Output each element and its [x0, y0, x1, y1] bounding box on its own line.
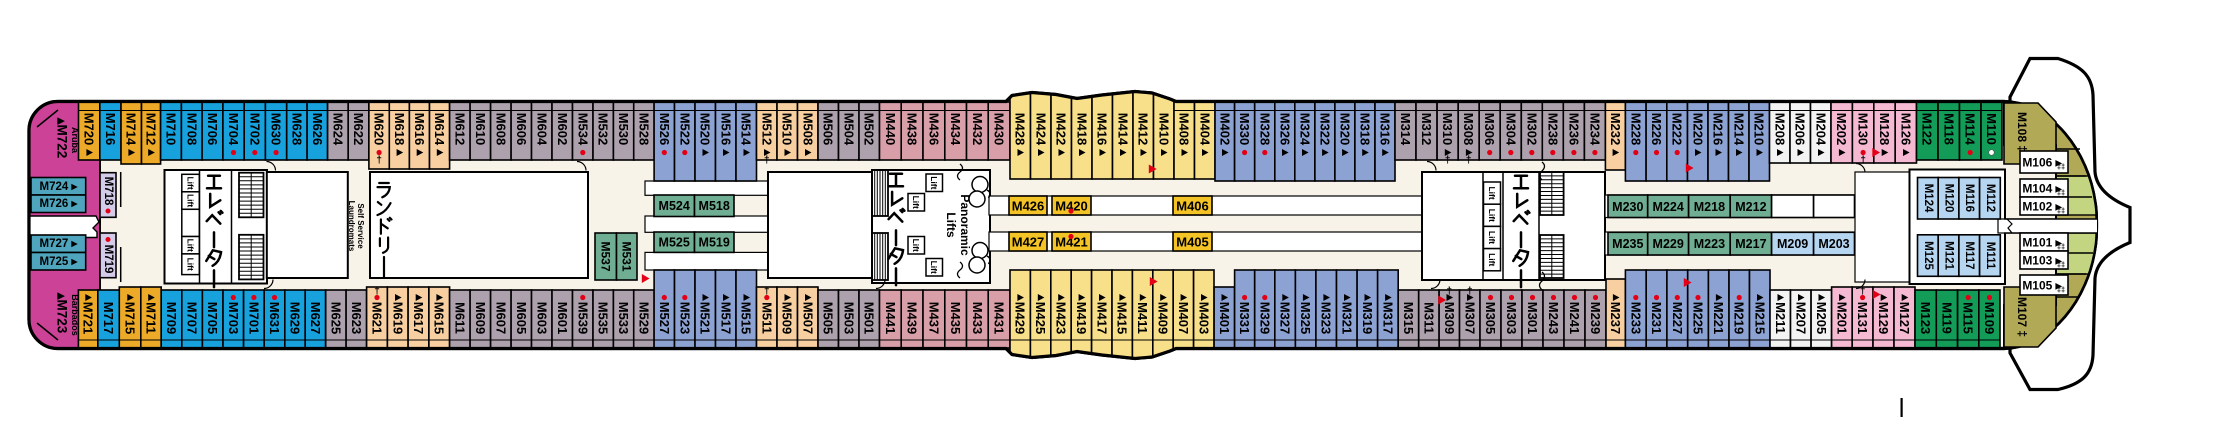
svg-text:M125: M125: [1922, 241, 1934, 270]
svg-text:M628: M628: [289, 113, 304, 146]
svg-text:M519: M519: [699, 236, 730, 250]
svg-text:M319: M319: [1360, 302, 1375, 335]
svg-text:M427: M427: [1012, 235, 1045, 250]
svg-text:M114: M114: [1963, 113, 1978, 146]
svg-text:M209: M209: [1777, 237, 1808, 251]
svg-text:M314: M314: [1398, 113, 1413, 146]
svg-text:M711: M711: [144, 302, 159, 334]
svg-text:M120: M120: [1943, 184, 1955, 213]
svg-text:M417: M417: [1094, 302, 1109, 335]
svg-text:M511: M511: [759, 302, 774, 334]
svg-text:M505: M505: [821, 302, 836, 335]
svg-text:M221: M221: [1711, 302, 1726, 335]
svg-text:M211: M211: [1773, 302, 1788, 334]
svg-text:Lift: Lift: [186, 239, 196, 252]
svg-text:Lifts: Lifts: [944, 212, 958, 238]
svg-text:M238: M238: [1545, 113, 1560, 146]
svg-text:M212: M212: [1735, 200, 1766, 214]
svg-text:†: †: [764, 286, 770, 297]
svg-text:M239: M239: [1588, 302, 1603, 335]
svg-text:M115: M115: [1961, 302, 1976, 334]
svg-text:M537: M537: [599, 241, 613, 271]
svg-text:M517: M517: [718, 302, 733, 335]
svg-text:M226: M226: [1649, 113, 1664, 146]
svg-text:M701: M701: [246, 302, 261, 335]
svg-text:†: †: [1466, 155, 1472, 166]
svg-text:M528: M528: [636, 113, 651, 146]
svg-text:M530: M530: [616, 113, 631, 146]
svg-text:M416: M416: [1095, 113, 1110, 146]
svg-text:M721: M721: [81, 302, 96, 335]
svg-text:M717: M717: [101, 302, 116, 335]
svg-text:M503: M503: [841, 302, 856, 335]
svg-text:‡‡: ‡‡: [2057, 206, 2065, 215]
svg-text:M403: M403: [1196, 302, 1211, 335]
svg-text:‡‡: ‡‡: [2057, 260, 2065, 269]
svg-text:M203: M203: [1818, 237, 1849, 251]
svg-text:M608: M608: [493, 113, 508, 146]
svg-text:M724 ▸: M724 ▸: [40, 181, 79, 193]
svg-text:Lift: Lift: [186, 194, 196, 207]
svg-text:M304: M304: [1503, 113, 1518, 146]
svg-text:M625: M625: [328, 302, 343, 335]
svg-text:M718: M718: [102, 177, 114, 206]
svg-text:M123: M123: [1918, 302, 1933, 335]
svg-text:Lift: Lift: [911, 196, 921, 209]
svg-text:M230: M230: [1612, 200, 1643, 214]
svg-text:M715: M715: [123, 302, 138, 335]
svg-text:Lift: Lift: [1487, 209, 1497, 222]
svg-text:M621: M621: [370, 302, 385, 335]
svg-text:M309: M309: [1442, 302, 1457, 335]
svg-text:M440: M440: [883, 113, 898, 146]
svg-text:M406: M406: [1176, 199, 1209, 214]
svg-text:M233: M233: [1628, 302, 1643, 335]
svg-text:M220: M220: [1690, 113, 1705, 146]
svg-text:M506: M506: [821, 113, 836, 146]
svg-text:M321: M321: [1339, 302, 1354, 335]
svg-text:M322: M322: [1317, 113, 1332, 146]
svg-text:M629: M629: [288, 302, 303, 335]
svg-text:†: †: [764, 155, 770, 166]
svg-text:M725 ▸: M725 ▸: [40, 256, 79, 268]
svg-text:M234: M234: [1587, 113, 1602, 146]
svg-text:M122: M122: [1920, 113, 1935, 146]
svg-text:M518: M518: [699, 199, 730, 213]
svg-text:M301: M301: [1525, 302, 1540, 335]
svg-text:M128: M128: [1877, 113, 1892, 146]
svg-text:M404: M404: [1197, 113, 1212, 146]
svg-text:M438: M438: [905, 113, 920, 146]
svg-text:M515: M515: [739, 302, 754, 335]
svg-text:M428: M428: [1013, 113, 1028, 146]
svg-text:Lift: Lift: [1487, 231, 1497, 244]
svg-text:M202: M202: [1834, 113, 1849, 146]
svg-text:M726 ▸: M726 ▸: [40, 198, 79, 210]
svg-text:Lift: Lift: [929, 176, 939, 189]
svg-text:M510: M510: [780, 113, 795, 146]
svg-text:M508: M508: [800, 113, 815, 146]
svg-text:M317: M317: [1380, 302, 1395, 335]
svg-text:M522: M522: [677, 113, 692, 146]
svg-text:M308: M308: [1461, 113, 1476, 146]
svg-text:M306: M306: [1482, 113, 1497, 146]
svg-text:M224: M224: [1653, 200, 1684, 214]
svg-text:M702: M702: [247, 113, 262, 146]
svg-text:M408: M408: [1177, 113, 1192, 146]
svg-text:M431: M431: [992, 302, 1007, 335]
svg-text:M201: M201: [1834, 302, 1849, 335]
svg-text:Laundromats: Laundromats: [347, 201, 356, 252]
svg-text:†: †: [1860, 155, 1866, 166]
svg-text:M626: M626: [310, 113, 325, 146]
svg-text:M318: M318: [1358, 113, 1373, 146]
svg-text:M327: M327: [1278, 302, 1293, 335]
svg-text:M412: M412: [1136, 113, 1151, 146]
svg-text:M411: M411: [1135, 302, 1150, 334]
svg-text:M326: M326: [1277, 113, 1292, 146]
svg-text:M604: M604: [534, 113, 549, 146]
svg-text:M423: M423: [1054, 302, 1069, 335]
svg-text:M305: M305: [1483, 302, 1498, 335]
svg-text:M424: M424: [1033, 113, 1048, 146]
svg-text:M108 ‡: M108 ‡: [2015, 112, 2029, 152]
svg-text:M127: M127: [1897, 302, 1912, 335]
svg-text:M727 ▸: M727 ▸: [40, 238, 79, 250]
svg-text:M523: M523: [677, 302, 692, 335]
svg-text:‡‡: ‡‡: [2057, 242, 2065, 251]
svg-text:M118: M118: [1941, 113, 1956, 145]
svg-text:M432: M432: [970, 113, 985, 146]
svg-text:M507: M507: [800, 302, 815, 335]
svg-text:M533: M533: [616, 302, 631, 335]
svg-text:M618: M618: [392, 113, 407, 146]
svg-text:M617: M617: [411, 302, 426, 335]
svg-text:M111: M111: [1984, 242, 1996, 270]
svg-text:M415: M415: [1115, 302, 1130, 335]
svg-text:M329: M329: [1257, 302, 1272, 335]
svg-text:M709: M709: [164, 302, 179, 335]
svg-text:M603: M603: [534, 302, 549, 335]
svg-text:M231: M231: [1649, 302, 1664, 335]
svg-text:M320: M320: [1337, 113, 1352, 146]
svg-text:†: †: [374, 286, 380, 297]
svg-text:M126: M126: [1898, 113, 1913, 146]
svg-text:M610: M610: [473, 113, 488, 146]
svg-text:M414: M414: [1115, 113, 1130, 146]
svg-text:M124: M124: [1922, 184, 1934, 213]
svg-text:M436: M436: [926, 113, 941, 146]
svg-text:M539: M539: [575, 302, 590, 335]
svg-text:M433: M433: [970, 302, 985, 335]
svg-text:‡‡: ‡‡: [2057, 285, 2065, 294]
svg-text:M705: M705: [205, 302, 220, 335]
svg-text:M121: M121: [1943, 241, 1955, 270]
svg-text:M131: M131: [1855, 302, 1870, 335]
svg-text:M430: M430: [992, 113, 1007, 146]
svg-text:M216: M216: [1711, 113, 1726, 146]
svg-text:M323: M323: [1319, 302, 1334, 335]
svg-text:M310: M310: [1440, 113, 1455, 146]
svg-text:M227: M227: [1670, 302, 1685, 335]
svg-text:M307: M307: [1462, 302, 1477, 335]
svg-text:M214: M214: [1731, 113, 1746, 146]
svg-text:Lift: Lift: [1487, 253, 1497, 266]
svg-text:M110: M110: [1984, 113, 1999, 145]
svg-text:M311: M311: [1421, 302, 1436, 334]
svg-text:M217: M217: [1735, 237, 1766, 251]
svg-text:M237: M237: [1608, 302, 1623, 335]
svg-text:M614: M614: [432, 113, 447, 146]
svg-text:M622: M622: [351, 113, 366, 146]
svg-text:M129: M129: [1876, 302, 1891, 335]
svg-text:M612: M612: [452, 113, 467, 146]
svg-text:M714: M714: [124, 113, 139, 146]
svg-text:M623: M623: [349, 302, 364, 335]
svg-text:‡‡: ‡‡: [2057, 162, 2065, 171]
svg-text:M710: M710: [164, 113, 179, 146]
svg-text:M208: M208: [1772, 113, 1787, 146]
svg-text:M509: M509: [780, 302, 795, 335]
svg-text:M116: M116: [1963, 184, 1975, 212]
svg-text:M303: M303: [1504, 302, 1519, 335]
svg-text:M109: M109: [1982, 302, 1997, 335]
svg-text:M534: M534: [575, 113, 590, 146]
svg-text:†: †: [1445, 155, 1451, 166]
svg-text:M611: M611: [452, 302, 467, 334]
svg-text:M232: M232: [1608, 113, 1623, 146]
svg-text:M615: M615: [432, 302, 447, 335]
svg-text:M716: M716: [103, 113, 118, 146]
svg-text:M602: M602: [555, 113, 570, 146]
svg-text:M324: M324: [1297, 113, 1312, 146]
svg-text:†: †: [376, 155, 382, 166]
svg-text:M703: M703: [226, 302, 241, 335]
svg-text:M712: M712: [144, 113, 159, 146]
svg-text:M325: M325: [1298, 302, 1313, 335]
svg-text:M409: M409: [1156, 302, 1171, 335]
svg-text:M720: M720: [82, 113, 97, 146]
svg-text:M207: M207: [1793, 302, 1808, 335]
svg-text:M435: M435: [948, 302, 963, 335]
svg-text:M704: M704: [226, 113, 241, 146]
svg-text:M315: M315: [1401, 302, 1416, 335]
svg-text:Lift: Lift: [1487, 186, 1497, 199]
svg-text:M218: M218: [1694, 200, 1725, 214]
svg-text:M222: M222: [1670, 113, 1685, 146]
svg-text:M402: M402: [1217, 113, 1232, 146]
svg-text:M439: M439: [905, 302, 920, 335]
svg-text:M215: M215: [1752, 302, 1767, 335]
svg-text:M119: M119: [1939, 302, 1954, 334]
svg-text:M525: M525: [659, 236, 690, 250]
svg-text:M524: M524: [659, 199, 690, 213]
svg-text:Lift: Lift: [186, 258, 196, 271]
svg-text:M223: M223: [1694, 237, 1725, 251]
svg-text:M532: M532: [596, 113, 611, 146]
svg-text:M107 ‡: M107 ‡: [2015, 297, 2029, 337]
svg-text:M526: M526: [657, 113, 672, 146]
svg-text:M616: M616: [412, 113, 427, 146]
svg-text:M527: M527: [657, 302, 672, 335]
svg-text:M225: M225: [1691, 302, 1706, 335]
svg-text:M707: M707: [185, 302, 200, 335]
svg-text:M620: M620: [372, 113, 387, 146]
svg-text:M312: M312: [1419, 113, 1434, 146]
svg-text:M236: M236: [1566, 113, 1581, 146]
svg-text:▴M722: ▴M722: [55, 117, 70, 159]
svg-text:Lift: Lift: [186, 176, 196, 189]
svg-text:†: †: [1467, 286, 1473, 297]
svg-text:M228: M228: [1628, 113, 1643, 146]
svg-text:M607: M607: [493, 302, 508, 335]
svg-text:M422: M422: [1054, 113, 1069, 146]
svg-text:M316: M316: [1378, 113, 1393, 146]
svg-text:M405: M405: [1176, 235, 1209, 250]
svg-text:M627: M627: [308, 302, 323, 335]
svg-text:M410: M410: [1156, 113, 1171, 146]
svg-text:M624: M624: [330, 113, 345, 146]
svg-text:M426: M426: [1012, 199, 1045, 214]
svg-text:M531: M531: [620, 241, 634, 271]
svg-text:M241: M241: [1567, 302, 1582, 335]
svg-text:M130: M130: [1856, 113, 1871, 146]
svg-text:M302: M302: [1524, 113, 1539, 146]
svg-text:M512: M512: [759, 113, 774, 146]
svg-text:M429: M429: [1013, 302, 1028, 335]
svg-text:M516: M516: [718, 113, 733, 146]
svg-text:M219: M219: [1732, 302, 1747, 335]
svg-text:†: †: [1447, 286, 1453, 297]
svg-text:M708: M708: [184, 113, 199, 146]
svg-text:M235: M235: [1612, 237, 1643, 251]
svg-text:M204: M204: [1813, 113, 1828, 146]
svg-text:M502: M502: [862, 113, 877, 146]
svg-text:M112: M112: [1984, 184, 1996, 212]
svg-text:M243: M243: [1546, 302, 1561, 335]
svg-text:M504: M504: [841, 113, 856, 146]
svg-text:M328: M328: [1257, 113, 1272, 146]
svg-text:Self Service: Self Service: [356, 203, 365, 249]
svg-text:M210: M210: [1752, 113, 1767, 146]
svg-text:▴M723: ▴M723: [55, 292, 70, 334]
svg-text:M631: M631: [267, 302, 282, 335]
svg-text:M229: M229: [1653, 237, 1684, 251]
svg-text:M330: M330: [1237, 113, 1252, 146]
svg-text:M606: M606: [514, 113, 529, 146]
svg-text:M206: M206: [1793, 113, 1808, 146]
svg-text:M706: M706: [205, 113, 220, 146]
svg-text:M630: M630: [269, 113, 284, 146]
svg-text:M520: M520: [698, 113, 713, 146]
svg-text:M331: M331: [1237, 302, 1252, 335]
svg-text:M418: M418: [1074, 113, 1089, 146]
svg-text:M434: M434: [948, 113, 963, 146]
svg-text:M441: M441: [883, 302, 898, 335]
svg-text:M521: M521: [698, 302, 713, 335]
svg-text:M529: M529: [636, 302, 651, 335]
svg-text:Lift: Lift: [911, 239, 921, 252]
svg-text:M407: M407: [1176, 302, 1191, 335]
svg-text:M419: M419: [1074, 302, 1089, 335]
svg-text:M605: M605: [514, 302, 529, 335]
svg-text:M117: M117: [1963, 241, 1975, 269]
svg-text:‡‡: ‡‡: [2057, 188, 2065, 197]
svg-text:M437: M437: [926, 302, 941, 335]
svg-text:M619: M619: [390, 302, 405, 335]
svg-text:M514: M514: [739, 113, 754, 146]
svg-text:M501: M501: [862, 302, 877, 335]
svg-text:M425: M425: [1033, 302, 1048, 335]
svg-text:M535: M535: [596, 302, 611, 335]
svg-text:M609: M609: [473, 302, 488, 335]
svg-text:M601: M601: [555, 302, 570, 335]
svg-text:M719: M719: [102, 245, 114, 274]
svg-text:Lift: Lift: [929, 261, 939, 274]
svg-text:M401: M401: [1217, 302, 1232, 335]
svg-text:M205: M205: [1814, 302, 1829, 335]
